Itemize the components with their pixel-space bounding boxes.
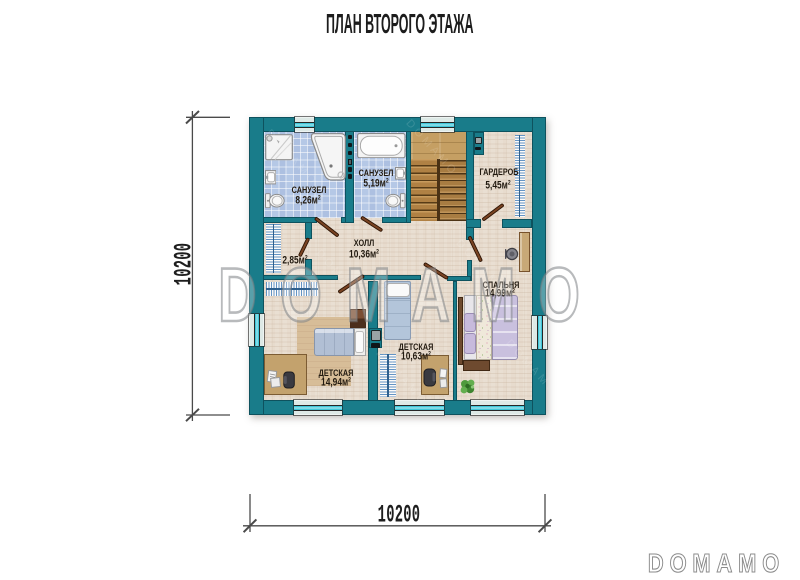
svg-text:DOMAMO: DOMAMO — [648, 549, 785, 578]
